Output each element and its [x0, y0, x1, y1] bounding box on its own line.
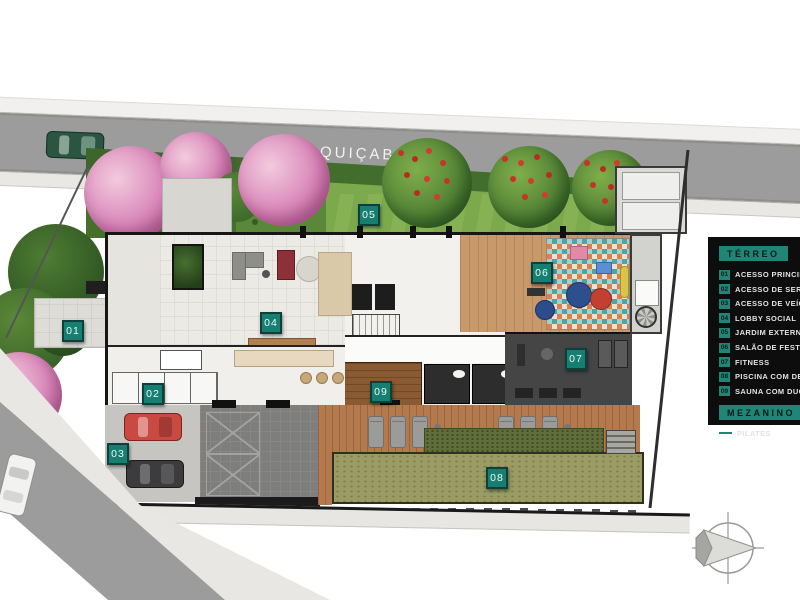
kids-table-pink [570, 246, 588, 260]
legend-item: 04 LOBBY SOCIAL [719, 313, 800, 323]
gate [212, 400, 236, 408]
legend-section-terreo-title: TÉRREO [719, 246, 788, 261]
gate [266, 400, 290, 408]
gym-machine [541, 348, 553, 360]
beanbag-blue [535, 300, 555, 320]
pool-planter [424, 428, 604, 454]
wc [160, 350, 202, 370]
site-plan: RUA QUIÇABÁ [0, 0, 800, 600]
lobby-planter [172, 244, 204, 290]
gym-bench [539, 388, 557, 398]
elevator-shaft [352, 284, 372, 310]
legend-dash-icon [719, 432, 732, 434]
beanbag-navy [566, 282, 592, 308]
lounge-chair [368, 416, 384, 448]
play-rug [546, 238, 630, 330]
spiral-stair [635, 306, 657, 328]
red-flower-tree [382, 138, 472, 228]
marker-01: 01 [62, 320, 84, 342]
stool [300, 372, 312, 384]
gym-bench [563, 388, 581, 398]
side-rooms [108, 235, 160, 345]
treadmill [614, 340, 628, 368]
pink-tree [238, 134, 330, 226]
compass-icon [692, 512, 764, 584]
marker-03: 03 [107, 443, 129, 465]
treadmill [598, 340, 612, 368]
legend-item: 01 ACESSO PRINCIPAL CO [719, 270, 800, 280]
lounge-chair [390, 416, 406, 448]
pool-steps [606, 430, 636, 454]
legend-item: PILATES [719, 429, 800, 438]
elevator-shaft [375, 284, 395, 310]
lockers [112, 372, 218, 404]
marker-09: 09 [370, 381, 392, 403]
stool [332, 372, 344, 384]
lobby-side-table [262, 270, 270, 278]
toy-board [620, 266, 629, 298]
legend-panel: TÉRREO 01 ACESSO PRINCIPAL CO 02 ACESSO … [708, 237, 800, 425]
shelf [527, 288, 545, 296]
red-flower-tree [488, 146, 570, 228]
lobby-red-sofa [277, 250, 295, 280]
shower-room [424, 364, 470, 404]
legend-item: 08 PISCINA COM DECK MO [719, 372, 800, 382]
marker-05: 05 [358, 204, 380, 226]
legend-section-mezanino-title: MEZANINO [719, 405, 800, 420]
marker-02: 02 [142, 383, 164, 405]
marker-06: 06 [531, 262, 553, 284]
marker-07: 07 [565, 348, 587, 370]
marker-08: 08 [486, 467, 508, 489]
hall-rug [318, 252, 352, 316]
restrooms [345, 335, 505, 363]
garage-ramp [200, 405, 318, 502]
entry-walkway [162, 178, 232, 236]
kids-table-blue [596, 262, 612, 274]
legend-item: 06 SALÃO DE FESTAS/BRI [719, 343, 800, 353]
legend-item: 05 JARDIM EXTERNO [719, 328, 800, 338]
legend-item: 03 ACESSO DE VEÍCULOS [719, 299, 800, 309]
stool [316, 372, 328, 384]
kitchen-counter [234, 350, 334, 367]
lobby-sofa [232, 252, 246, 280]
marker-04: 04 [260, 312, 282, 334]
legend-item: 07 FITNESS [719, 357, 800, 367]
dark-car [126, 460, 184, 488]
fitness-floor [505, 332, 632, 408]
utility-annex [615, 166, 687, 234]
beanbag-red [590, 288, 612, 310]
gym-machine [517, 344, 525, 366]
legend-item: 02 ACESSO DE SERVIÇO [719, 284, 800, 294]
gym-bench [515, 388, 533, 398]
service-corridor [630, 234, 662, 334]
red-car [124, 413, 182, 441]
legend-item: 09 SAUNA COM DUCHA [719, 386, 800, 396]
